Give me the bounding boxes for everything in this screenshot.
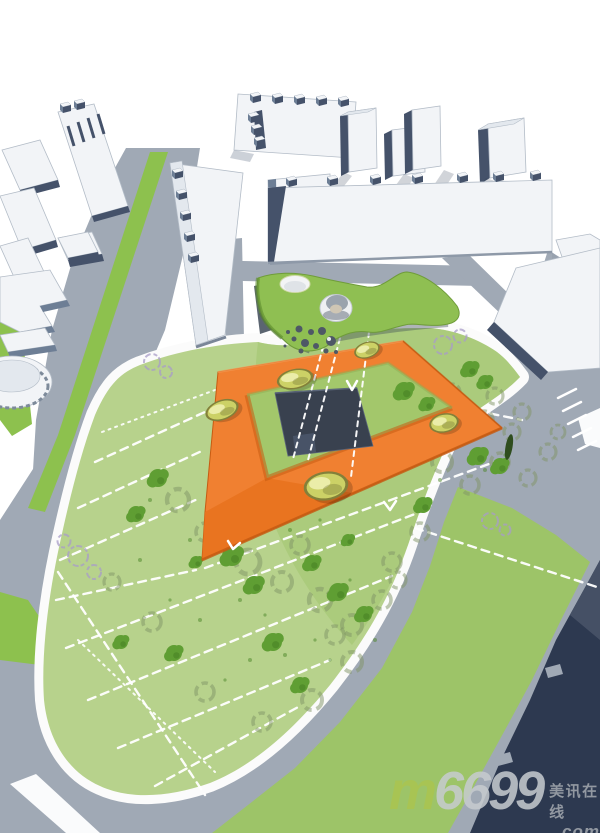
watermark-text-block: 美讯在线 .com: [549, 780, 600, 833]
site-plan-canvas: [0, 0, 600, 833]
watermark-domain: .com: [549, 822, 600, 833]
watermark-logo-number: 6699: [434, 768, 542, 814]
canopy-hole-glint: [327, 337, 331, 341]
watermark-logo-m: m: [389, 768, 434, 814]
canopy-hole-large-shade: [284, 281, 306, 292]
canopy-dome-core: [330, 305, 342, 314]
architectural-site-rendering: m 6699 美讯在线 .com: [0, 0, 600, 833]
watermark-tagline: 美讯在线: [549, 780, 600, 822]
watermark: m 6699 美讯在线 .com: [389, 768, 600, 833]
